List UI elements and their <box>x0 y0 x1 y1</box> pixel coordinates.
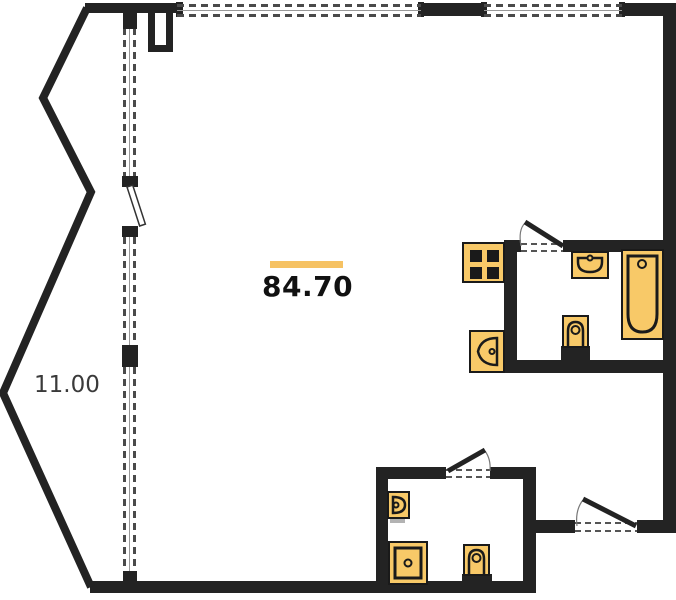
area-label: 84.70 <box>262 270 352 303</box>
toilet-top <box>561 316 590 364</box>
faucet <box>490 349 495 354</box>
bath-left-wall <box>504 240 517 373</box>
drain <box>405 560 412 567</box>
burner <box>470 250 482 262</box>
bath2-top-wall-seg <box>388 467 446 479</box>
bathroom-bottom-door <box>446 450 490 477</box>
bathroom-top-door <box>520 222 563 251</box>
wash-basin <box>388 492 409 523</box>
shaft <box>148 10 173 52</box>
balcony-door-leaf <box>127 185 145 226</box>
wall-right <box>663 3 676 533</box>
faucet <box>394 503 399 508</box>
entrance-wall-right <box>637 520 676 533</box>
bath2-top-wall-seg <box>490 467 523 479</box>
faucet <box>588 256 593 261</box>
toilet-bottom <box>462 545 492 586</box>
entrance-door <box>575 499 637 531</box>
wall-top-left <box>85 3 177 13</box>
window-mullion <box>122 345 138 367</box>
window-top <box>177 6 622 16</box>
balcony-dimension-label: 11.00 <box>34 372 98 398</box>
corner-sink <box>470 331 504 372</box>
shower <box>389 542 427 584</box>
bathroom-sink <box>572 252 608 278</box>
stove <box>463 243 504 282</box>
area-accent-bar <box>270 261 343 268</box>
window-jamb <box>123 13 137 29</box>
toilet-tank <box>561 346 590 364</box>
floor-plan: 84.70 11.00 <box>0 0 676 600</box>
window-mullion <box>122 226 138 237</box>
bathtub <box>622 250 663 339</box>
burner <box>487 267 499 279</box>
burner <box>470 267 482 279</box>
bath2-left-wall <box>376 467 388 593</box>
wall-top-middle <box>421 3 484 16</box>
window-jamb <box>123 571 137 586</box>
drain <box>638 260 646 268</box>
window-left <box>122 13 145 586</box>
balcony-wall <box>3 8 91 587</box>
bath2-right-wall <box>523 467 536 593</box>
burner <box>487 250 499 262</box>
